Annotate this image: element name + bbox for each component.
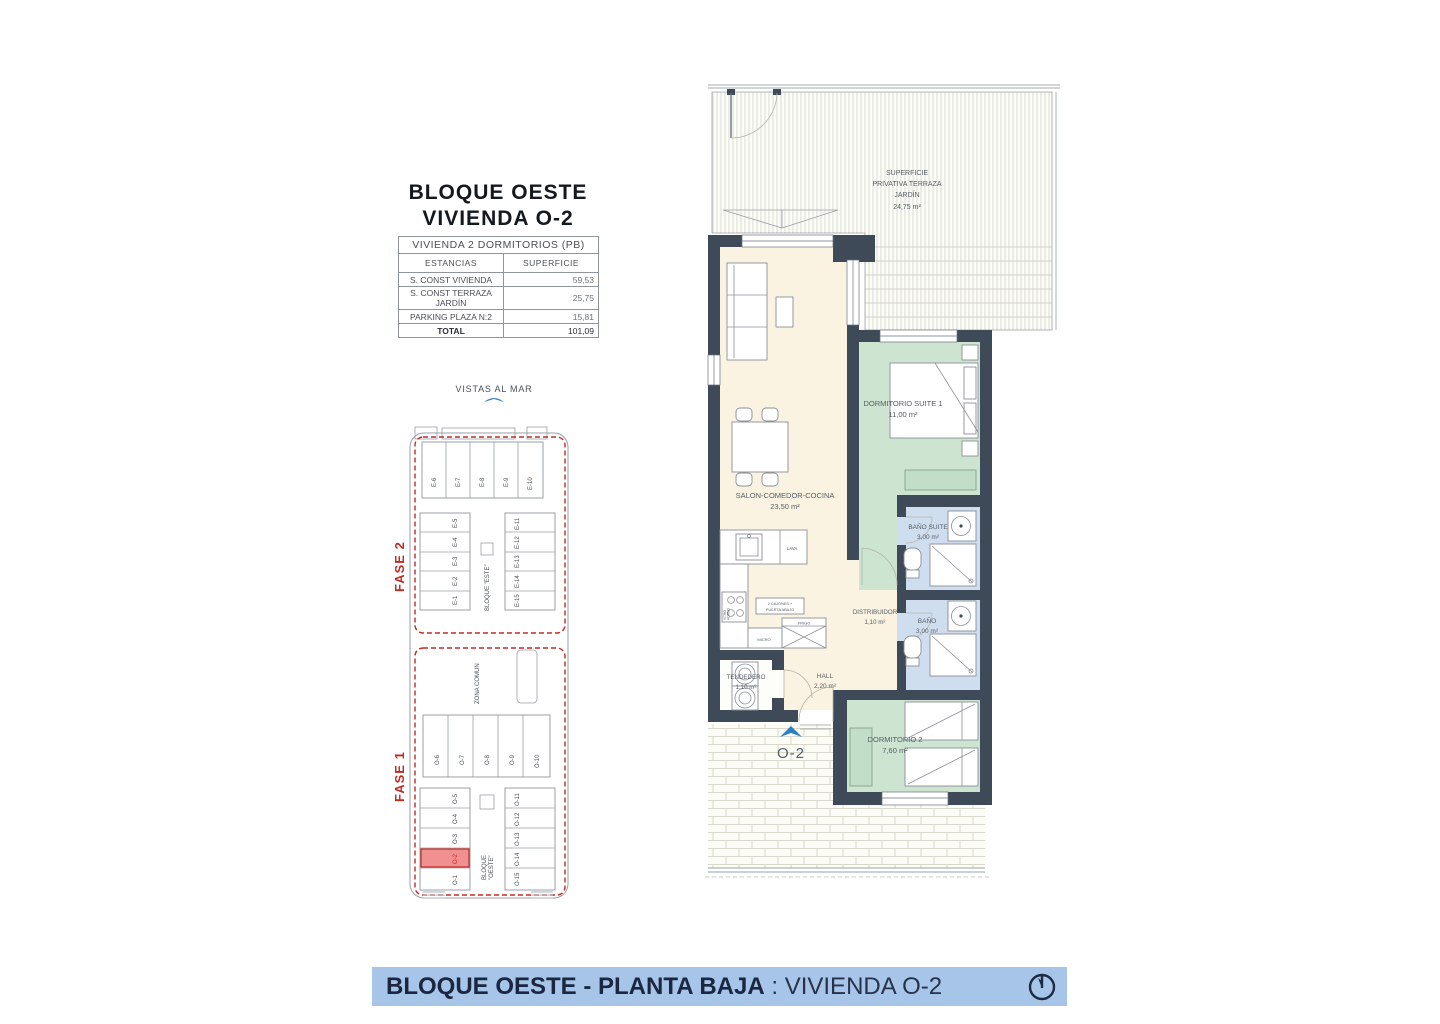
kitchen-sink xyxy=(736,534,762,560)
table-row: PARKING PLAZA N:2 15,81 xyxy=(399,310,599,324)
shower xyxy=(930,634,976,676)
toilet xyxy=(904,636,921,658)
dorm2-label: DORMITORIO 2 xyxy=(868,735,923,744)
unit-cell-label: E-15 xyxy=(515,594,521,607)
unit-marker-text: O-2 xyxy=(777,745,805,762)
unit-cell-label: E-12 xyxy=(515,536,521,549)
salon-label: SALON-COMEDOR-COCINA xyxy=(736,491,835,500)
horno-label: HORNO xyxy=(727,608,731,620)
unit-cell-label: O-5 xyxy=(453,793,459,804)
unit-cell-label: O-3 xyxy=(453,833,459,844)
toilet xyxy=(904,548,921,570)
footer-title-regular: VIVIENDA O-2 xyxy=(785,973,942,1000)
window-salon-top xyxy=(742,235,833,247)
bano-label: BAÑO xyxy=(918,616,936,625)
micro-label: MICRO xyxy=(757,637,770,642)
svg-text:2,20 m²: 2,20 m² xyxy=(814,683,837,690)
unit-cell-label-o2: O-2 xyxy=(453,853,459,864)
sheet-title-line1: BLOQUE OESTE xyxy=(380,180,616,206)
suite1-label: DORMITORIO SUITE 1 xyxy=(863,399,942,408)
shower xyxy=(930,544,976,586)
svg-text:SUPERFICIE: SUPERFICIE xyxy=(886,170,928,177)
unit-cell-label: E-13 xyxy=(515,555,521,568)
svg-text:7,60 m²: 7,60 m² xyxy=(882,746,908,755)
unit-cell-label: O-15 xyxy=(515,872,521,886)
unit-cell-label: E-7 xyxy=(456,477,462,487)
lava-label: LAVA xyxy=(787,546,798,551)
fase2-label: FASE 2 xyxy=(395,541,407,592)
sea-direction-icon xyxy=(482,394,506,404)
unit-cell-label: E-10 xyxy=(528,477,534,490)
window-suite1 xyxy=(880,330,957,342)
svg-text:FRIGO: FRIGO xyxy=(798,621,811,626)
svg-text:11,00 m²: 11,00 m² xyxy=(888,410,918,419)
unit-cell-label: E-9 xyxy=(504,477,510,487)
unit-cell-label: E-2 xyxy=(453,576,459,586)
nightstand xyxy=(962,441,978,456)
door-opening-bano-suite xyxy=(897,517,906,545)
hall-label: HALL xyxy=(817,673,834,680)
coffee-table xyxy=(776,297,793,327)
nightstand xyxy=(962,345,978,360)
distribuidor-label: DISTRIBUIDOR xyxy=(853,609,898,616)
suite-passage xyxy=(859,495,897,590)
col-superficie: SUPERFICIE xyxy=(504,254,599,273)
vistas-al-mar-label: VISTAS AL MAR xyxy=(424,384,564,394)
svg-text:23,50 m²: 23,50 m² xyxy=(770,502,800,511)
plot-boundary xyxy=(708,85,1060,88)
surface-table-header: VIVIENDA 2 DORMITORIOS (PB) xyxy=(399,237,599,254)
window-salon-terraza xyxy=(847,260,859,325)
unit-cell-label: E-6 xyxy=(432,477,438,487)
unit-cell-label: O-8 xyxy=(485,754,491,765)
fase1-label: FASE 1 xyxy=(395,751,407,802)
suite1-dresser xyxy=(905,470,976,490)
zona-comun-label: ZONA COMUN xyxy=(475,663,481,704)
svg-text:1,10 m²: 1,10 m² xyxy=(865,619,886,626)
sheet-title-line2: VIVIENDA O-2 xyxy=(380,206,616,232)
unit-cell-label: O-4 xyxy=(453,813,459,824)
footer-title: BLOQUE OESTE - PLANTA BAJA : VIVIENDA O-… xyxy=(386,973,942,1001)
door-opening-bano xyxy=(897,613,906,641)
unit-cell-label: E-3 xyxy=(453,556,459,566)
svg-text:1,10 m²: 1,10 m² xyxy=(736,684,757,691)
window-salon-left xyxy=(708,355,720,385)
unit-cell-label: O-14 xyxy=(515,852,521,866)
tendedero-label: TENDEDERO xyxy=(727,674,766,681)
floorplan-sheet: { "header": { "title_line1": "BLOQUE OES… xyxy=(0,0,1440,1024)
fase2-left-column: E-5 E-4 E-3 E-2 E-1 xyxy=(420,513,470,610)
svg-text:24,75 m²: 24,75 m² xyxy=(893,204,921,211)
site-plan: FASE 2 FASE 1 E-6 E-7 E-8 E-9 E-10 E-5 E… xyxy=(395,425,575,910)
fase1-top-row: O-6 O-7 O-8 O-9 O-10 xyxy=(423,715,550,777)
fase2-top-row: E-6 E-7 E-8 E-9 E-10 xyxy=(422,442,543,498)
unit-cell-label: E-8 xyxy=(480,477,486,487)
unit-o2-highlight xyxy=(421,849,469,867)
unit-cell-label: O-13 xyxy=(515,832,521,846)
table-row: S. CONST TERRAZA JARDÍN 25,75 xyxy=(399,287,599,310)
unit-cell-label: E-4 xyxy=(453,537,459,547)
sheet-footer: BLOQUE OESTE - PLANTA BAJA : VIVIENDA O-… xyxy=(372,967,1067,1006)
table-row: S. CONST VIVIENDA 59,53 xyxy=(399,273,599,287)
unit-cell-label: E-14 xyxy=(515,575,521,588)
kitchen-hob: VITRO HORNO xyxy=(722,592,746,622)
bloque-oeste-label2: "OESTE" xyxy=(489,855,495,880)
vistas-al-mar: VISTAS AL MAR xyxy=(424,384,564,406)
unit-cell-label: O-11 xyxy=(515,792,521,806)
unit-cell-label: E-1 xyxy=(453,595,459,605)
svg-text:3,00 m²: 3,00 m² xyxy=(916,628,939,635)
footer-title-separator: : xyxy=(765,973,785,1000)
bloque-este-label: BLOQUE "ESTE" xyxy=(485,564,491,611)
fase1-right-column: O-11 O-12 O-13 O-14 O-15 xyxy=(505,788,555,890)
unit-cell-label: O-7 xyxy=(460,754,466,765)
unit-cell-label: O-1 xyxy=(453,874,459,885)
sheet-title: BLOQUE OESTE VIVIENDA O-2 xyxy=(380,180,616,233)
bloque-oeste-label: BLOQUE xyxy=(482,855,488,880)
surface-table: VIVIENDA 2 DORMITORIOS (PB) ESTANCIAS SU… xyxy=(398,236,599,338)
svg-text:JARDÍN: JARDÍN xyxy=(894,190,919,199)
svg-text:2 CAJONES +: 2 CAJONES + xyxy=(768,602,793,606)
bano-suite-label: BAÑO SUITE xyxy=(908,522,948,531)
door-opening-tendedero xyxy=(772,670,784,698)
cajones-note: 2 CAJONES + PUERTA ABAJO xyxy=(756,598,804,614)
table-row-total: TOTAL 101,09 xyxy=(399,324,599,338)
window-dorm2 xyxy=(882,792,948,805)
unit-cell-label: O-9 xyxy=(510,754,516,765)
unit-cell-label: E-5 xyxy=(453,518,459,528)
unit-cell-label: O-12 xyxy=(515,812,521,826)
fase2-right-column: E-11 E-12 E-13 E-14 E-15 xyxy=(505,513,555,610)
sofa xyxy=(727,263,767,360)
fridge: FRIGO xyxy=(782,618,826,648)
unit-cell-label: E-11 xyxy=(515,517,521,530)
unit-cell-label: O-6 xyxy=(435,754,441,765)
north-arrow-icon xyxy=(1027,972,1057,1002)
svg-text:3,00 m²: 3,00 m² xyxy=(917,534,940,541)
svg-text:PRIVATIVA TERRAZA: PRIVATIVA TERRAZA xyxy=(872,181,941,188)
footer-title-bold: BLOQUE OESTE - PLANTA BAJA xyxy=(386,973,765,1000)
unit-cell-label: O-10 xyxy=(535,754,541,768)
svg-text:PUERTA ABAJO: PUERTA ABAJO xyxy=(766,608,794,612)
col-estancias: ESTANCIAS xyxy=(399,254,504,273)
unit-floor-plan: SUPERFICIE PRIVATIVA TERRAZA JARDÍN 24,7… xyxy=(700,80,1070,880)
fase1-left-column: O-5 O-4 O-3 O-2 O-1 xyxy=(420,788,470,890)
